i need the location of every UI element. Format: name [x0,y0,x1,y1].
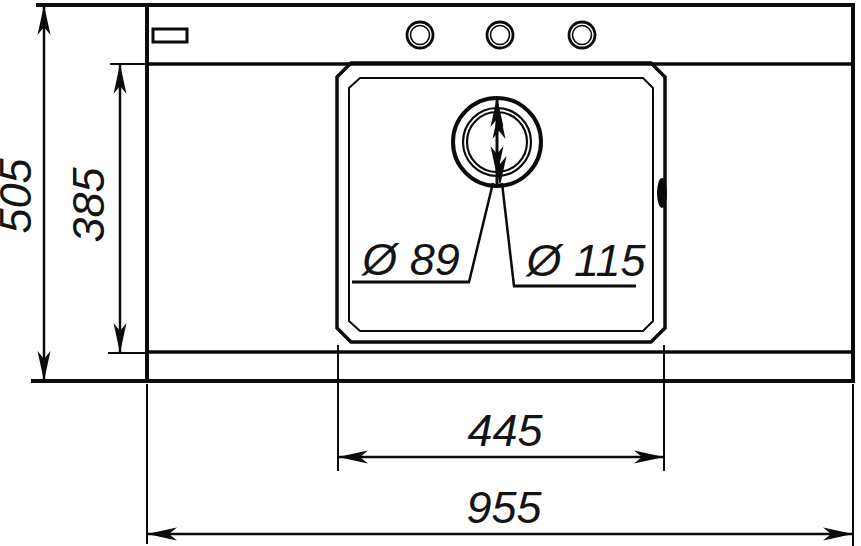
dim-955-label: 955 [466,482,542,533]
leader-line-left [469,183,493,282]
sink-technical-drawing: Ø 89 Ø 115 505 385 445 955 [0,0,861,546]
faucet-hole-right [569,22,595,48]
leader-line-right [502,183,514,286]
dim-inner-height: 385 [63,64,147,353]
dim-505-label: 505 [0,157,41,233]
faucet-hole-center [487,22,513,48]
faucet-hole-left [407,22,433,48]
drain-diameter-89-label: Ø 89 [360,234,460,285]
bowl-outer-rim [337,63,665,342]
sink-outline [31,3,853,383]
dim-445-label: 445 [467,405,543,456]
dim-overall-height: 505 [0,5,51,381]
sink-bowl [337,63,667,342]
faucet-deck [153,22,595,48]
overflow-mark [657,178,667,208]
drain-hole: Ø 89 Ø 115 [352,97,647,286]
logo-plate [153,29,187,42]
drain-diameter-115-label: Ø 115 [524,235,646,286]
dim-385-label: 385 [63,166,114,242]
dim-bowl-width: 445 [338,345,664,471]
